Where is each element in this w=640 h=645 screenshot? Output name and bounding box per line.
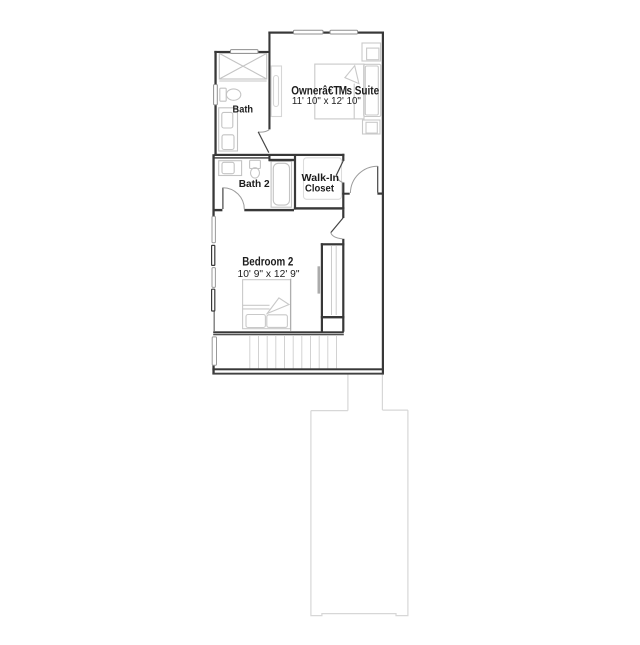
svg-text:Bath: Bath bbox=[233, 105, 254, 116]
svg-text:Bath 2: Bath 2 bbox=[239, 178, 270, 190]
svg-text:Closet: Closet bbox=[305, 183, 334, 195]
svg-text:Bedroom 2: Bedroom 2 bbox=[242, 256, 293, 268]
svg-text:11' 10" x 12' 10": 11' 10" x 12' 10" bbox=[292, 96, 361, 107]
svg-text:10' 9" x 12' 9": 10' 9" x 12' 9" bbox=[238, 269, 300, 280]
